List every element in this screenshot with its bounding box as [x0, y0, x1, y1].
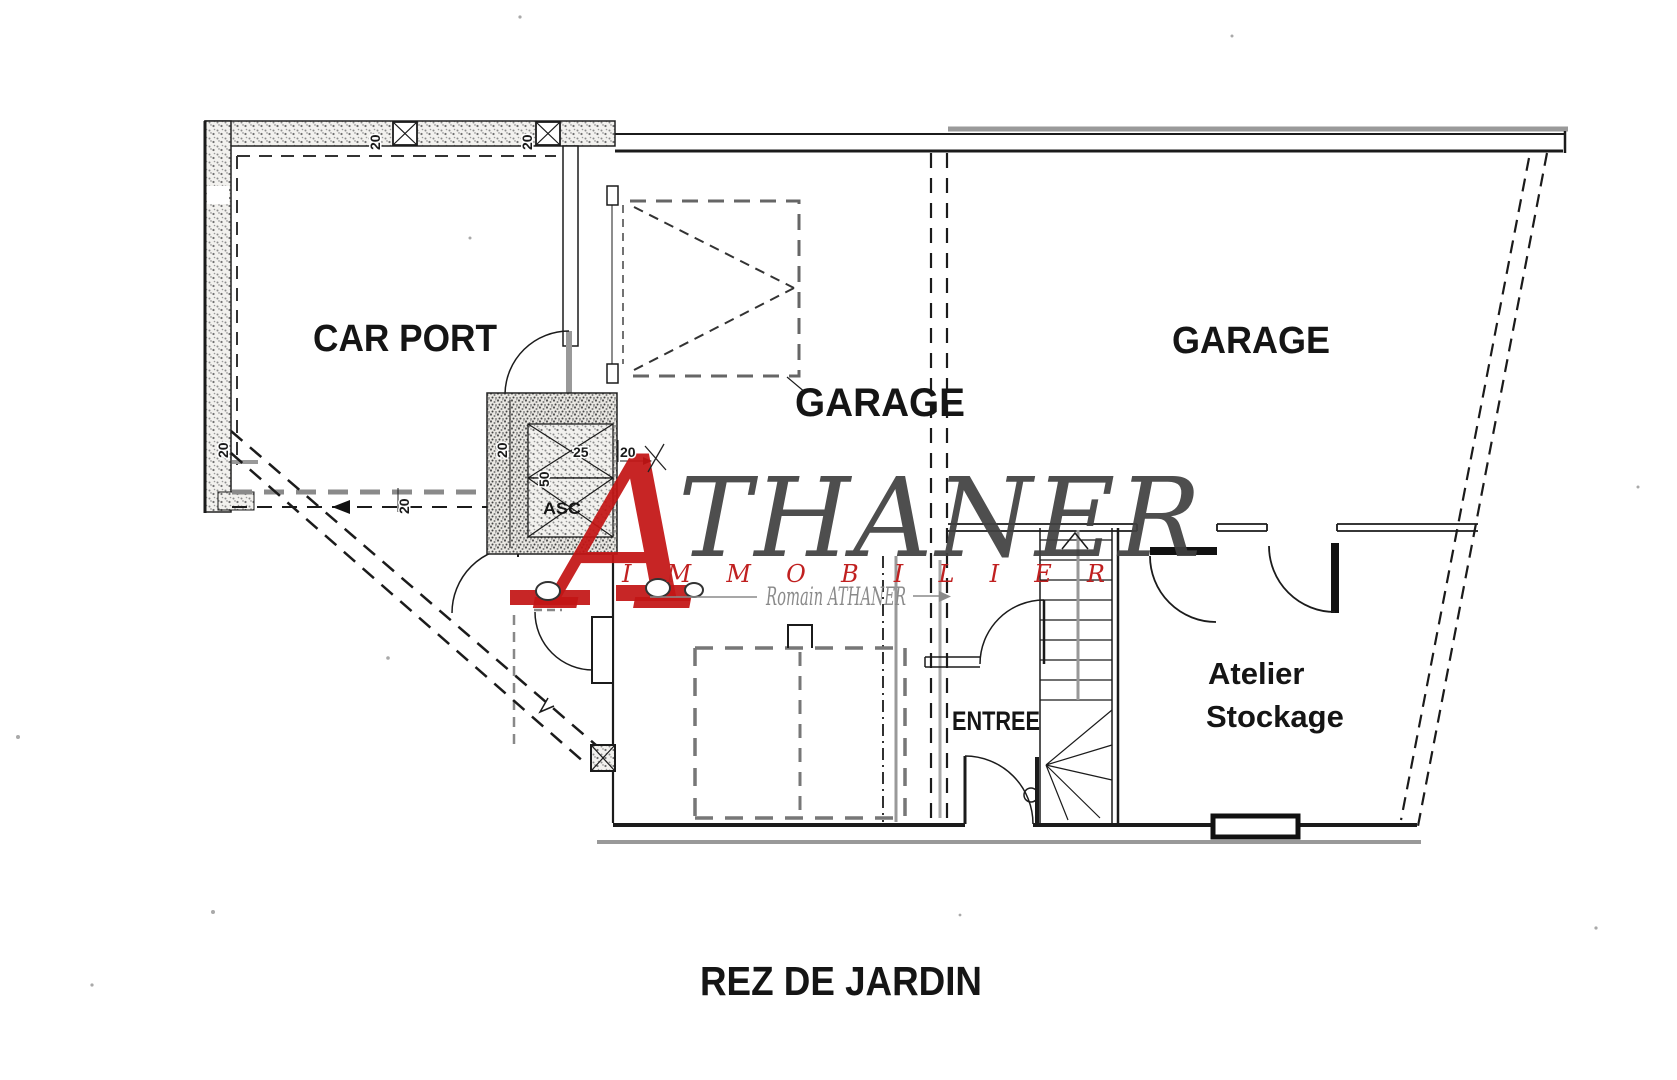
- slant-wall-outer: [1418, 153, 1547, 826]
- floor-title: REZ DE JARDIN: [700, 958, 982, 1004]
- dim-20-elevator-left: 20: [494, 442, 510, 458]
- entrance-inner-door: [925, 600, 1044, 667]
- garage-right-label: GARAGE: [1172, 320, 1330, 362]
- hall-door-arc-left: [452, 547, 518, 613]
- garage-door-swing-triangle: [634, 207, 794, 370]
- floor-plan-page: A THANER IMMOBILIER Romain ATHANER CAR P…: [0, 0, 1677, 1080]
- entrance-label: ENTREE: [952, 706, 1040, 736]
- room-labels: CAR PORT GARAGE GARAGE ENTREE Atelier St…: [313, 318, 1344, 1004]
- dim-20-post1: 20: [367, 134, 383, 150]
- door-arc-carport: [505, 331, 569, 394]
- door-leaf: [1331, 543, 1339, 613]
- workshop-door-right: [1269, 543, 1339, 613]
- watermark-signature: Romain ATHANER: [765, 582, 906, 611]
- parking-post-stub: [788, 625, 812, 648]
- signature-arrow: [939, 591, 951, 602]
- door-arc: [1269, 546, 1335, 612]
- watermark: A THANER IMMOBILIER Romain ATHANER: [510, 411, 1204, 658]
- window-symbol: [1213, 816, 1298, 837]
- driveway-post: [591, 745, 615, 771]
- left-wall-opening: [207, 186, 229, 204]
- dim-20-left-wall: 20: [215, 442, 231, 458]
- workshop-label-line2: Stockage: [1206, 699, 1344, 734]
- door-arc: [980, 600, 1044, 664]
- workshop-label-line1: Atelier: [1208, 656, 1304, 691]
- entry-door: [965, 756, 1033, 824]
- dim-20-carport-bottom: 20: [396, 498, 412, 514]
- door-leaf-carport: [566, 331, 572, 393]
- door-arc: [965, 756, 1033, 824]
- garage-center-label: GARAGE: [795, 381, 965, 425]
- garage-left-wall: [563, 146, 578, 346]
- watermark-circle-1: [536, 582, 560, 600]
- wall-ledge: [925, 657, 980, 667]
- top-wall-post-1: [393, 122, 417, 145]
- stair-winders: [1046, 710, 1112, 820]
- dim-50-elevator: 50: [536, 471, 552, 487]
- dim-20-post2: 20: [519, 134, 535, 150]
- elevator-label: ASC: [543, 499, 581, 518]
- floor-plan-svg: A THANER IMMOBILIER Romain ATHANER CAR P…: [0, 0, 1677, 1080]
- carport-label: CAR PORT: [313, 318, 497, 360]
- dim-arrow-left: [332, 500, 350, 514]
- garage-door-swing-box: [630, 201, 799, 376]
- slant-wall-inner: [1401, 158, 1529, 820]
- dim-20-elevator-right: 20: [620, 444, 636, 460]
- dim-25-elevator: 25: [573, 444, 589, 460]
- watermark-initial: A: [532, 411, 702, 658]
- garage-door-jamb-top: [607, 186, 618, 205]
- top-wall-post-2: [536, 122, 560, 145]
- garage-door-jamb-bottom: [607, 364, 618, 383]
